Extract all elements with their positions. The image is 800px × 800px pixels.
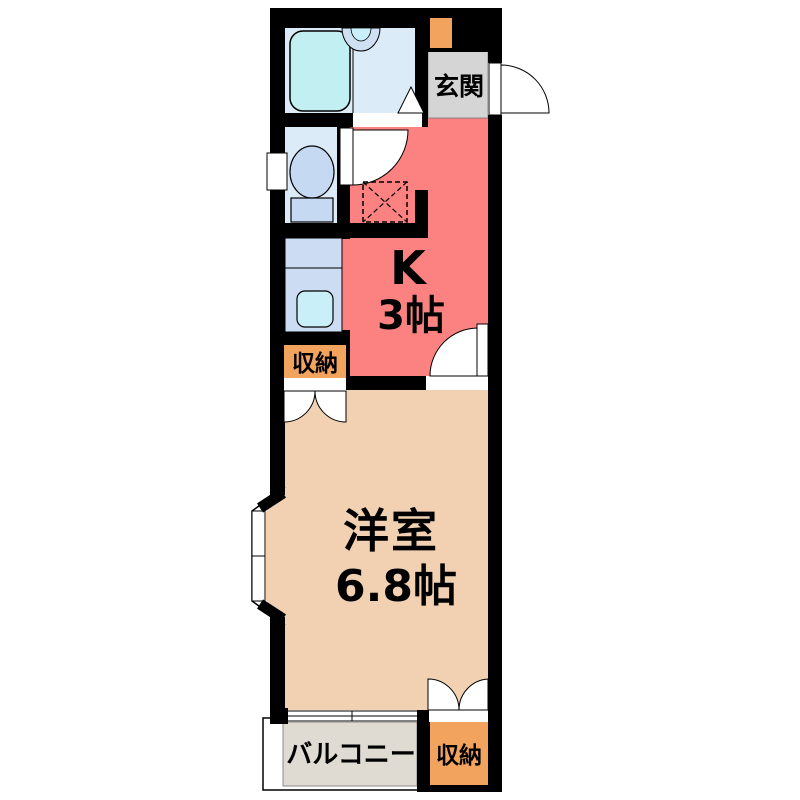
wall: [346, 376, 428, 390]
entrance-door-leaf: [489, 63, 501, 115]
toilet-window: [267, 153, 287, 190]
bathroom-door-opening: [353, 113, 422, 127]
wall: [270, 223, 428, 238]
toilet-bowl: [290, 146, 334, 198]
entrance-label: 玄関: [434, 72, 484, 101]
closet-upper-label: 収納: [292, 350, 338, 377]
kitchen-floor: [428, 118, 488, 128]
closet-upper-opening: [284, 378, 346, 391]
wall: [270, 617, 285, 722]
kitchen-size-label: 3帖: [377, 293, 445, 339]
toilet-tank: [291, 198, 333, 222]
kitchen-room-door-leaf: [477, 324, 488, 376]
kitchen-sink: [297, 291, 333, 327]
entrance-door-swing: [501, 65, 549, 113]
floor-plan: 玄関 K 3帖 収納 洋室 6.8帖 バルコニー 収納: [0, 0, 800, 800]
bathtub: [290, 31, 350, 111]
wall: [270, 8, 285, 495]
floorplan-page: 玄関 K 3帖 収納 洋室 6.8帖 バルコニー 収納: [0, 0, 800, 800]
closet-lower-label: 収納: [436, 742, 482, 769]
kitchen-label: K: [390, 241, 428, 295]
western-room-label: 洋室: [343, 504, 439, 558]
kitchen-room-opening: [426, 376, 488, 390]
wall: [415, 8, 502, 52]
closet-lower-opening: [429, 710, 488, 722]
meter-box: [430, 18, 452, 48]
western-room-size-label: 6.8帖: [335, 561, 457, 612]
wall: [415, 190, 428, 230]
bay-window-floor: [266, 490, 285, 622]
wall: [270, 708, 288, 724]
bathroom-door-leaf: [340, 128, 353, 185]
wall: [488, 50, 502, 792]
balcony-label: バルコニー: [286, 740, 415, 770]
